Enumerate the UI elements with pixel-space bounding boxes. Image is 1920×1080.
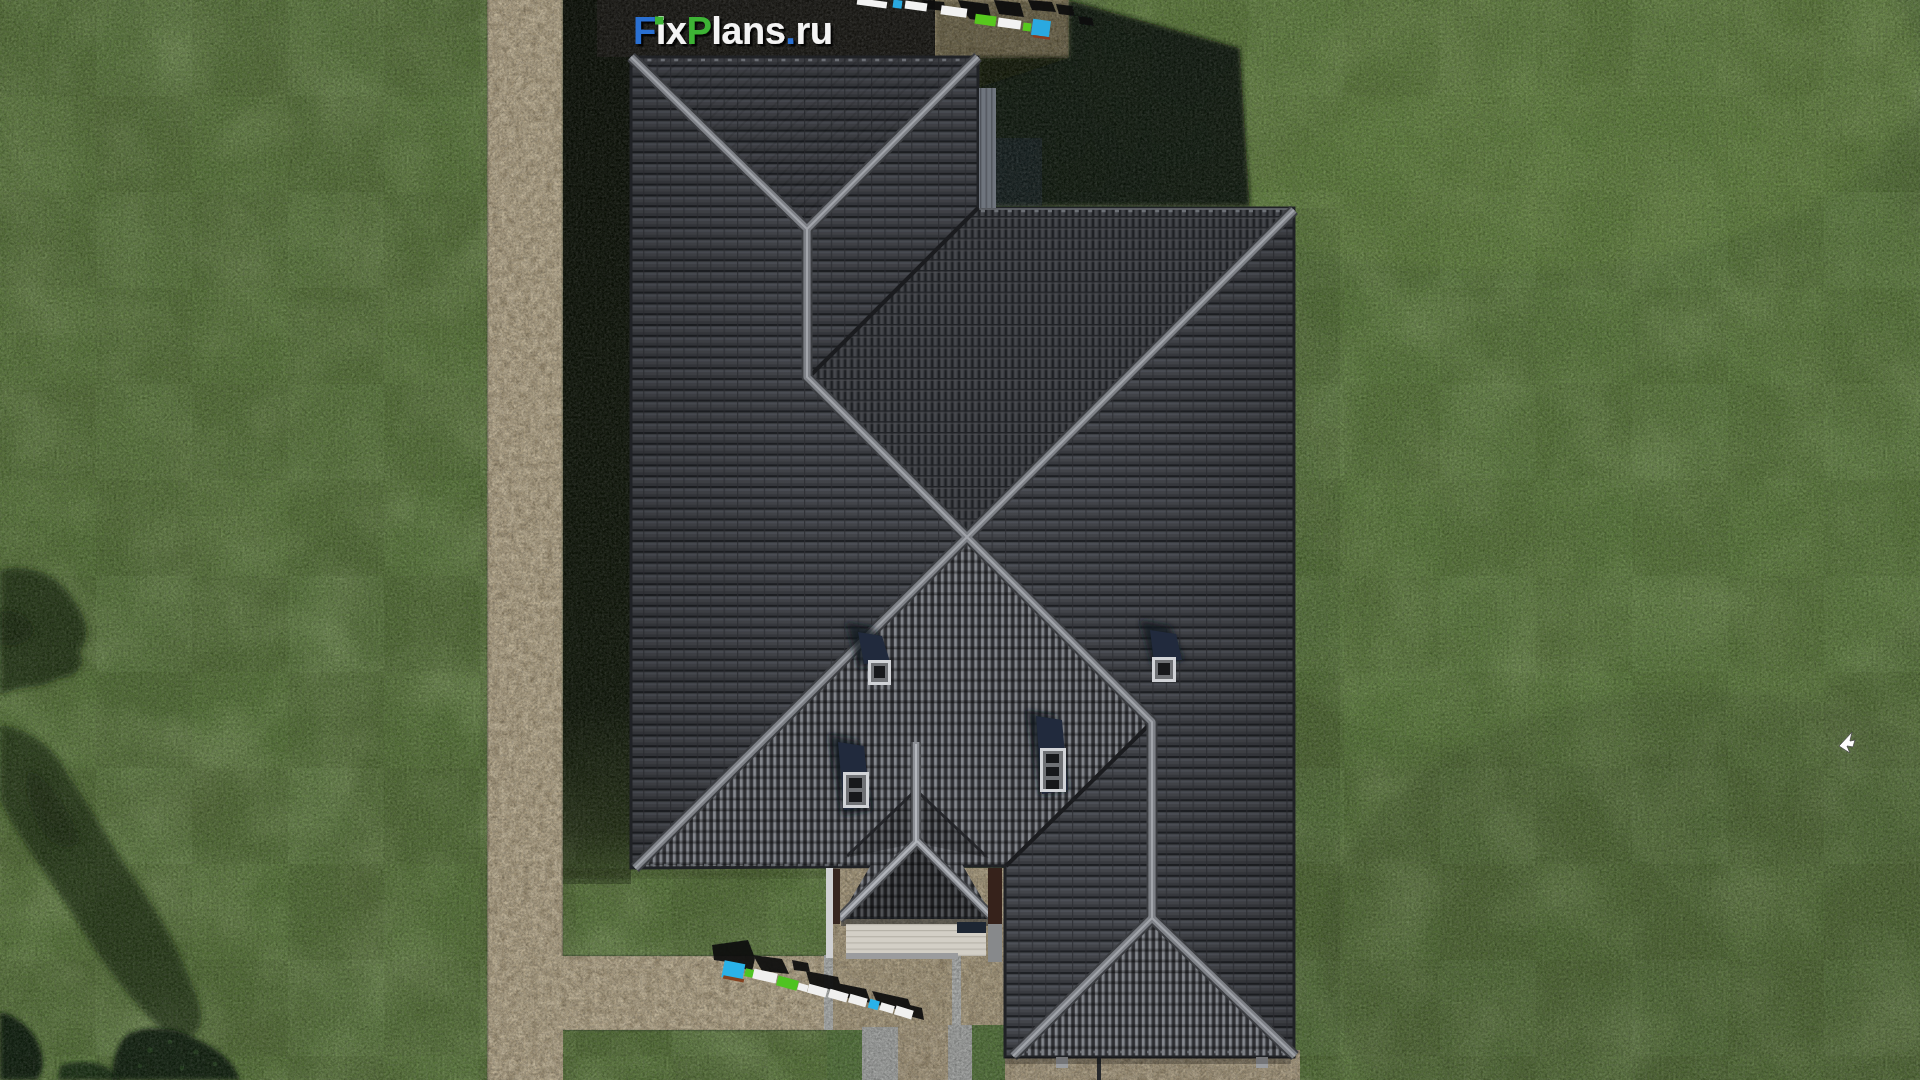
svg-text:FixPlans.ru: FixPlans.ru <box>633 10 832 52</box>
